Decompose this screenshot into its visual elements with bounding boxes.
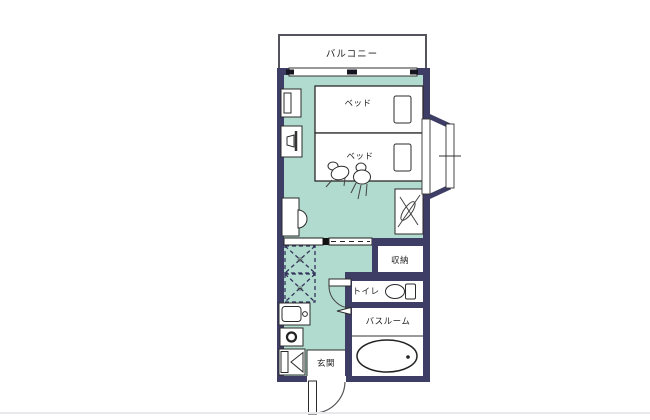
bathroom-label: バスルーム [366, 315, 411, 327]
kitchen-sink-icon [279, 303, 310, 325]
bathtub-drain-icon [406, 355, 410, 359]
bed-icon-upper [315, 86, 423, 133]
bay-window-icon [422, 114, 461, 199]
shoe-cabinet-icon [279, 349, 305, 375]
storage-label: 収納 [391, 254, 409, 266]
toilet-icon [386, 284, 416, 299]
storage-top-wall [372, 238, 423, 246]
sliding-door-icon [284, 238, 372, 245]
svg-text:※: ※ [297, 256, 303, 264]
luggage-rack-icon [395, 189, 423, 234]
bed-upper-label: ベッド [344, 97, 371, 109]
toilet-label: トイレ [352, 285, 379, 297]
svg-text:※: ※ [297, 285, 303, 293]
bottom-separator-line [0, 412, 650, 414]
balcony-window-icon [286, 68, 418, 76]
entrance-label: 玄関 [317, 357, 335, 369]
pillow-icon [394, 96, 411, 123]
pillow-icon [394, 144, 411, 171]
bed-lower-label: ベッド [346, 150, 373, 162]
bathtub-icon [357, 340, 417, 372]
wall-cabinet-icon [281, 89, 301, 117]
floorplan-screenshot: ※ ※ [0, 0, 650, 420]
tv-icon [281, 126, 302, 157]
entrance-door-icon [309, 381, 346, 414]
balcony-label: バルコニー [326, 46, 378, 60]
stove-burner-icon [280, 328, 303, 346]
